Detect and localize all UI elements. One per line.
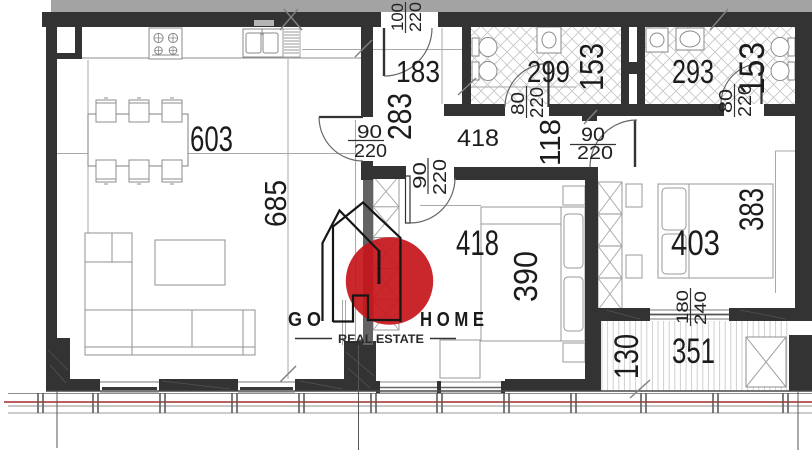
svg-text:383: 383 xyxy=(733,188,771,231)
svg-text:390: 390 xyxy=(507,251,544,302)
svg-text:418: 418 xyxy=(457,125,499,152)
svg-text:220: 220 xyxy=(527,87,547,118)
svg-text:418: 418 xyxy=(456,224,499,263)
svg-text:220: 220 xyxy=(354,141,387,161)
svg-text:293: 293 xyxy=(672,53,714,90)
svg-text:H O M E: H O M E xyxy=(420,309,484,331)
svg-text:80: 80 xyxy=(716,89,736,113)
svg-text:403: 403 xyxy=(671,224,720,263)
svg-text:90: 90 xyxy=(357,122,382,142)
svg-text:G O: G O xyxy=(288,309,321,331)
svg-text:130: 130 xyxy=(608,334,646,379)
svg-text:220: 220 xyxy=(430,159,450,195)
svg-text:80: 80 xyxy=(508,92,528,115)
svg-text:153: 153 xyxy=(573,43,610,91)
svg-text:100: 100 xyxy=(388,3,407,31)
svg-text:240: 240 xyxy=(691,291,710,325)
svg-text:REAL ESTATE: REAL ESTATE xyxy=(338,334,424,346)
svg-text:220: 220 xyxy=(577,143,613,163)
svg-text:685: 685 xyxy=(258,180,293,227)
svg-text:90: 90 xyxy=(410,162,430,189)
svg-text:220: 220 xyxy=(406,2,425,32)
svg-text:283: 283 xyxy=(381,93,418,140)
svg-text:603: 603 xyxy=(190,120,233,159)
svg-text:351: 351 xyxy=(672,332,715,371)
svg-text:118: 118 xyxy=(535,119,567,166)
svg-text:180: 180 xyxy=(673,290,692,324)
svg-text:183: 183 xyxy=(396,54,440,89)
svg-text:220: 220 xyxy=(735,84,755,117)
svg-text:299: 299 xyxy=(527,54,570,89)
